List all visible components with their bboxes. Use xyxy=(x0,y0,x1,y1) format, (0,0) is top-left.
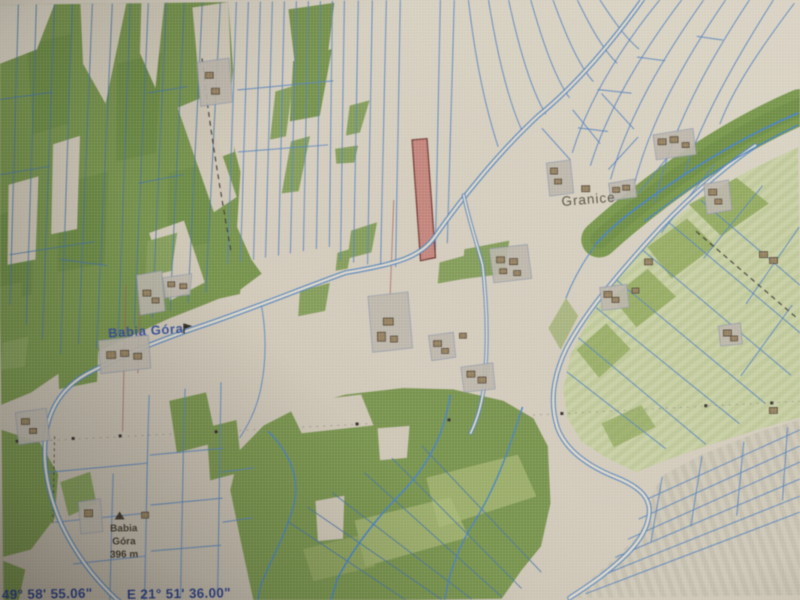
map-photo: Babia Góra Granice Babia Góra 396 m 49° … xyxy=(0,0,800,600)
photo-grain-overlay xyxy=(0,0,800,600)
map-canvas[interactable]: Babia Góra Granice Babia Góra 396 m 49° … xyxy=(0,0,800,600)
